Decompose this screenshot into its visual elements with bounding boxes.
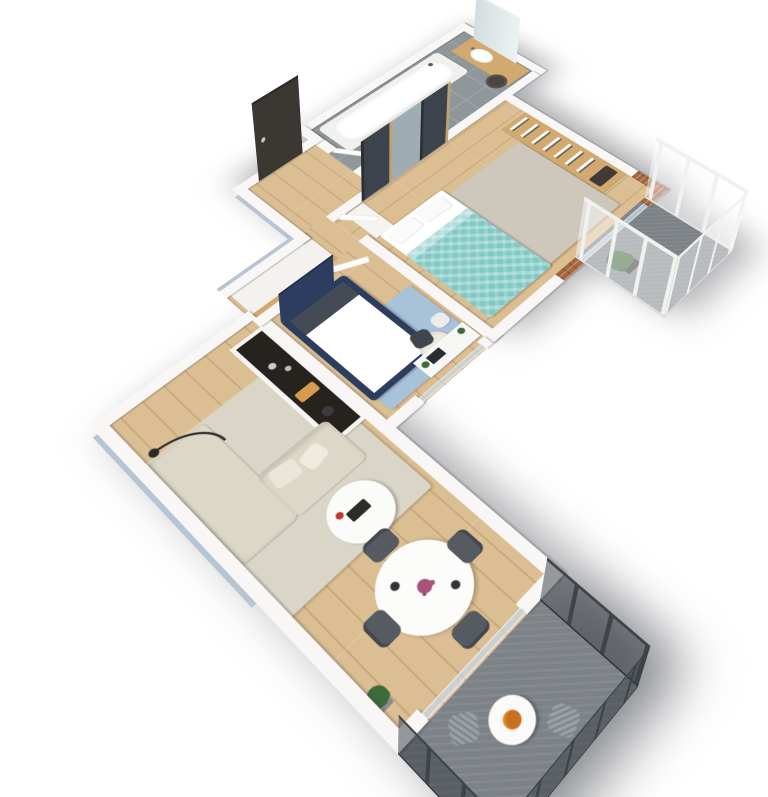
perspective-wrapper [0,0,768,797]
door-handle [261,136,265,143]
floorplan-stage [0,0,768,797]
